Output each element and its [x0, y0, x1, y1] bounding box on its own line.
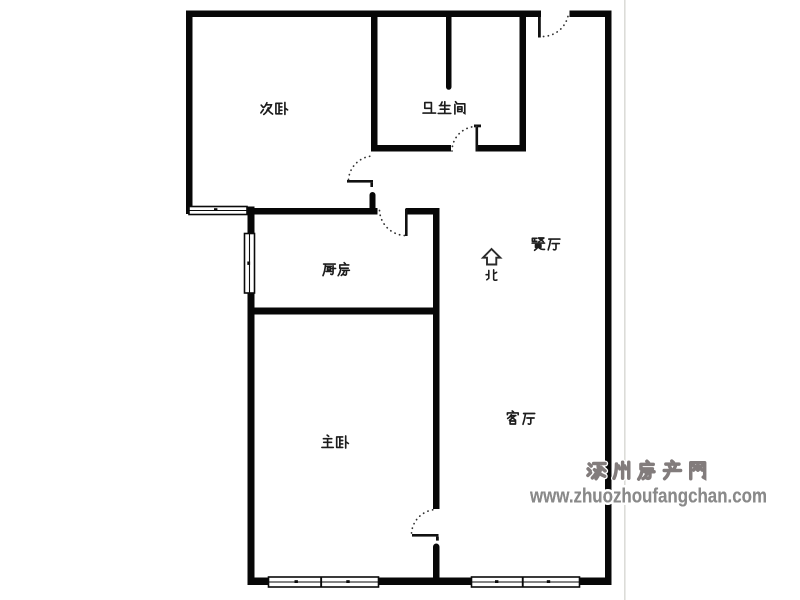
- svg-text:www.zhuozhoufangchan.com: www.zhuozhoufangchan.com: [529, 486, 767, 508]
